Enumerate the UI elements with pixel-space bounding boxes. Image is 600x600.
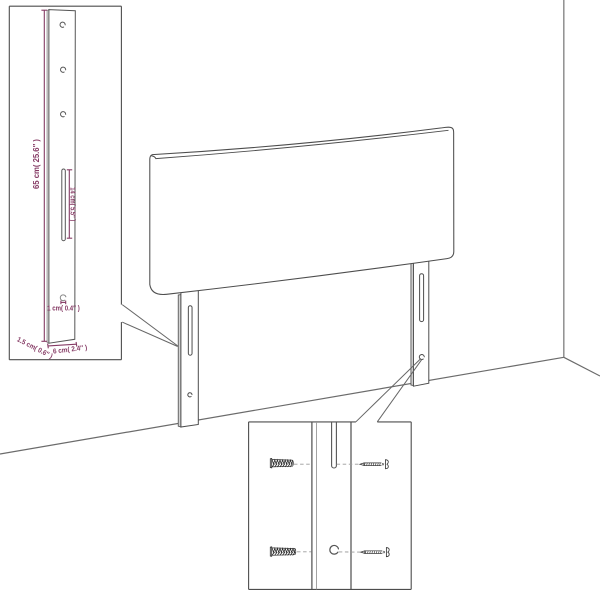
svg-text:1 cm( 0.4″ ): 1 cm( 0.4″ ) <box>47 305 80 312</box>
svg-text:65 cm( 25.6″ ): 65 cm( 25.6″ ) <box>32 139 41 189</box>
svg-text:14 cm( 5.5″ ): 14 cm( 5.5″ ) <box>68 187 75 221</box>
